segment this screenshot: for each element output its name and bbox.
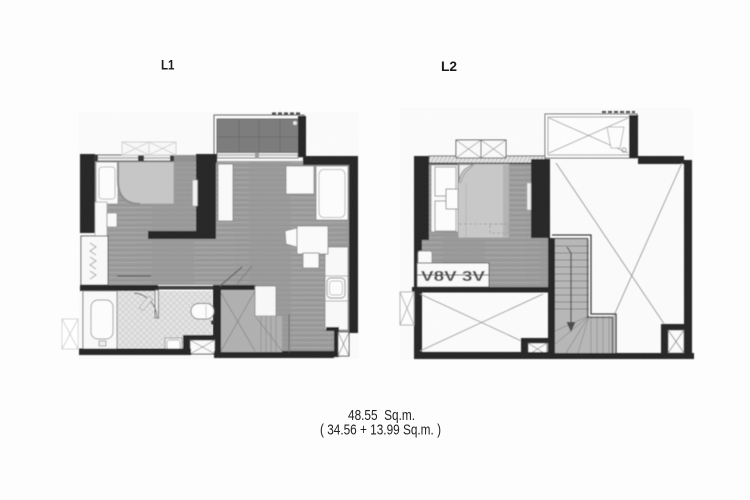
svg-text:L1: L1 (161, 58, 175, 73)
svg-text:( 34.56 + 13.99 Sq.m. ): ( 34.56 + 13.99 Sq.m. ) (320, 422, 441, 439)
svg-text:L2: L2 (441, 59, 457, 74)
